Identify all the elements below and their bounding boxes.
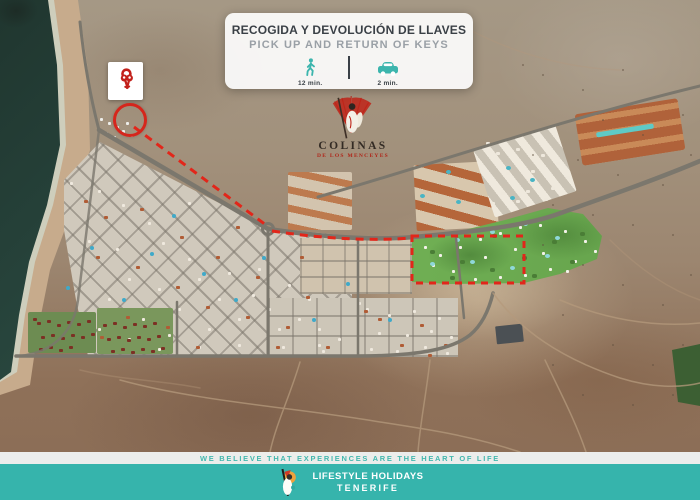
divider bbox=[348, 56, 350, 79]
buildings-speckle bbox=[70, 182, 73, 185]
pickup-location-circle bbox=[113, 103, 147, 137]
buildings-speckle bbox=[486, 142, 490, 145]
drive-time-label: 2 min. bbox=[377, 80, 398, 87]
garden-complex-east bbox=[97, 308, 173, 354]
brand-name: LIFESTYLE HOLIDAYS bbox=[312, 471, 423, 482]
resort-subtitle: DE LOS MENCEYES bbox=[304, 153, 402, 159]
card-title-en: PICK UP AND RETURN OF KEYS bbox=[225, 39, 473, 51]
walk-time-column: 12 min. bbox=[288, 56, 332, 87]
walk-time-label: 12 min. bbox=[298, 80, 323, 87]
lifestyle-holidays-logo bbox=[276, 467, 300, 497]
resort-pools-speckle bbox=[455, 238, 460, 242]
car-icon bbox=[376, 56, 400, 79]
keys-icon bbox=[113, 67, 139, 96]
resort-trees-speckle bbox=[430, 250, 435, 254]
roofs-speckle bbox=[364, 310, 368, 313]
resort-buildings-speckle bbox=[424, 246, 427, 249]
apartment-complex bbox=[288, 172, 352, 230]
map-canvas: COLINAS DE LOS MENCEYES RECOGIDA Y DEVOL… bbox=[0, 0, 700, 500]
travel-times-row: 12 min. 2 min. bbox=[225, 56, 473, 87]
garden-complex-west bbox=[28, 312, 96, 353]
brand-location: TENERIFE bbox=[312, 483, 423, 493]
colinas-crest-icon bbox=[322, 96, 384, 142]
colinas-resort-label: COLINAS DE LOS MENCEYES bbox=[304, 96, 402, 159]
dark-warehouse bbox=[495, 324, 524, 345]
drive-time-column: 2 min. bbox=[366, 56, 410, 87]
card-title-es: RECOGIDA Y DEVOLUCIÓN DE LLAVES bbox=[225, 23, 473, 37]
key-pickup-marker bbox=[108, 62, 143, 100]
garden-roofs-speckle bbox=[33, 318, 37, 321]
brand-text-block: LIFESTYLE HOLIDAYS TENERIFE bbox=[312, 471, 423, 493]
pools-speckle bbox=[446, 170, 451, 174]
tagline-text: WE BELIEVE THAT EXPERIENCES ARE THE HEAR… bbox=[200, 454, 500, 463]
buildings-speckle bbox=[358, 302, 361, 305]
resort-name: COLINAS bbox=[304, 140, 402, 152]
tagline-bar: WE BELIEVE THAT EXPERIENCES ARE THE HEAR… bbox=[0, 452, 700, 464]
mid-apartment-blocks bbox=[300, 238, 412, 294]
south-urban-strip bbox=[268, 298, 458, 357]
pickup-info-card: RECOGIDA Y DEVOLUCIÓN DE LLAVES PICK UP … bbox=[225, 13, 473, 89]
station-buildings-speckle bbox=[100, 118, 103, 121]
walking-person-icon bbox=[299, 56, 321, 79]
pools-speckle bbox=[150, 252, 154, 256]
desert-scrub-speckle bbox=[522, 64, 524, 66]
roofs-speckle bbox=[84, 200, 88, 203]
brand-bar: LIFESTYLE HOLIDAYS TENERIFE bbox=[0, 464, 700, 500]
